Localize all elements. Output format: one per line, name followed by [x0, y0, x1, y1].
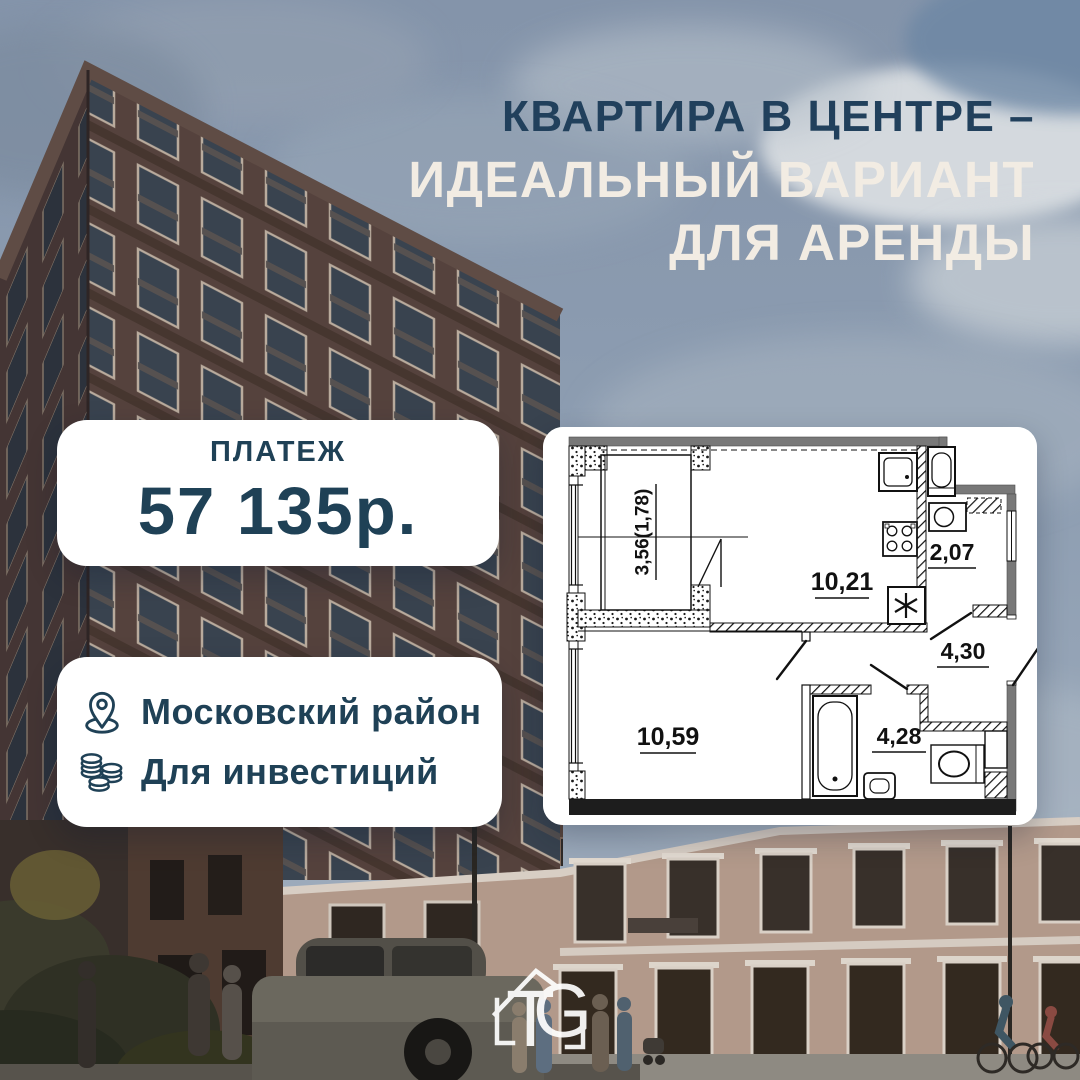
coins-icon: [79, 749, 125, 795]
bathtub: [813, 696, 857, 796]
investment-label: Для инвестиций: [141, 751, 439, 793]
stove: [883, 522, 917, 556]
left-foreground: [0, 820, 295, 1080]
cabinet: [985, 731, 1007, 798]
room-area-label-balcony: 3,56(1,78): [633, 489, 654, 576]
pedestrian: [592, 994, 609, 1072]
payment-amount: 57 135р.: [138, 473, 418, 550]
investment-row: Для инвестиций: [79, 749, 502, 795]
poster: КВАРТИРА В ЦЕНТРЕ – ИДЕАЛЬНЫЙ ВАРИАНТ ДЛ…: [0, 0, 1080, 1080]
bottom-wall: [569, 799, 1016, 815]
payment-label: ПЛАТЕЖ: [210, 436, 346, 469]
pedestrian: [222, 965, 242, 1060]
info-card: Московский район Для инвестиций: [57, 657, 502, 827]
headline-line-1: КВАРТИРА В ЦЕНТРЕ –: [408, 86, 1035, 148]
floor-plan-card: 3,56(1,78) 10,21 2,07 4,30 10,59 4,28: [543, 427, 1037, 825]
room-area-label-bedroom: 10,59: [637, 723, 700, 751]
room-area-label-corridor: 4,30: [941, 638, 986, 664]
room-area-label-kitchen: 10,21: [811, 568, 874, 596]
fridge: [928, 447, 955, 496]
headline-line-3: ДЛЯ АРЕНДЫ: [408, 211, 1035, 274]
kitchen-sink: [879, 453, 917, 491]
room-area-label-bathroom: 4,28: [877, 723, 922, 749]
door-canopy: [628, 918, 698, 933]
wash-basin: [931, 745, 984, 783]
logo-letter-t: T: [506, 974, 555, 1058]
floor-plan: 3,56(1,78) 10,21 2,07 4,30 10,59 4,28: [543, 427, 1037, 825]
brand-logo: G T: [486, 958, 594, 1058]
district-row: Московский район: [79, 689, 502, 735]
room-area-label-hall: 2,07: [930, 539, 975, 565]
toilet: [864, 773, 895, 799]
washing-machine: [929, 503, 966, 531]
pedestrian: [188, 953, 210, 1056]
headline-line-2: ИДЕАЛЬНЫЙ ВАРИАНТ: [408, 148, 1035, 211]
payment-card: ПЛАТЕЖ 57 135р.: [57, 420, 499, 566]
headline: КВАРТИРА В ЦЕНТРЕ – ИДЕАЛЬНЫЙ ВАРИАНТ ДЛ…: [408, 86, 1035, 274]
location-pin-icon: [79, 689, 125, 735]
district-label: Московский район: [141, 691, 481, 733]
future-appliance-spot: [888, 587, 925, 624]
